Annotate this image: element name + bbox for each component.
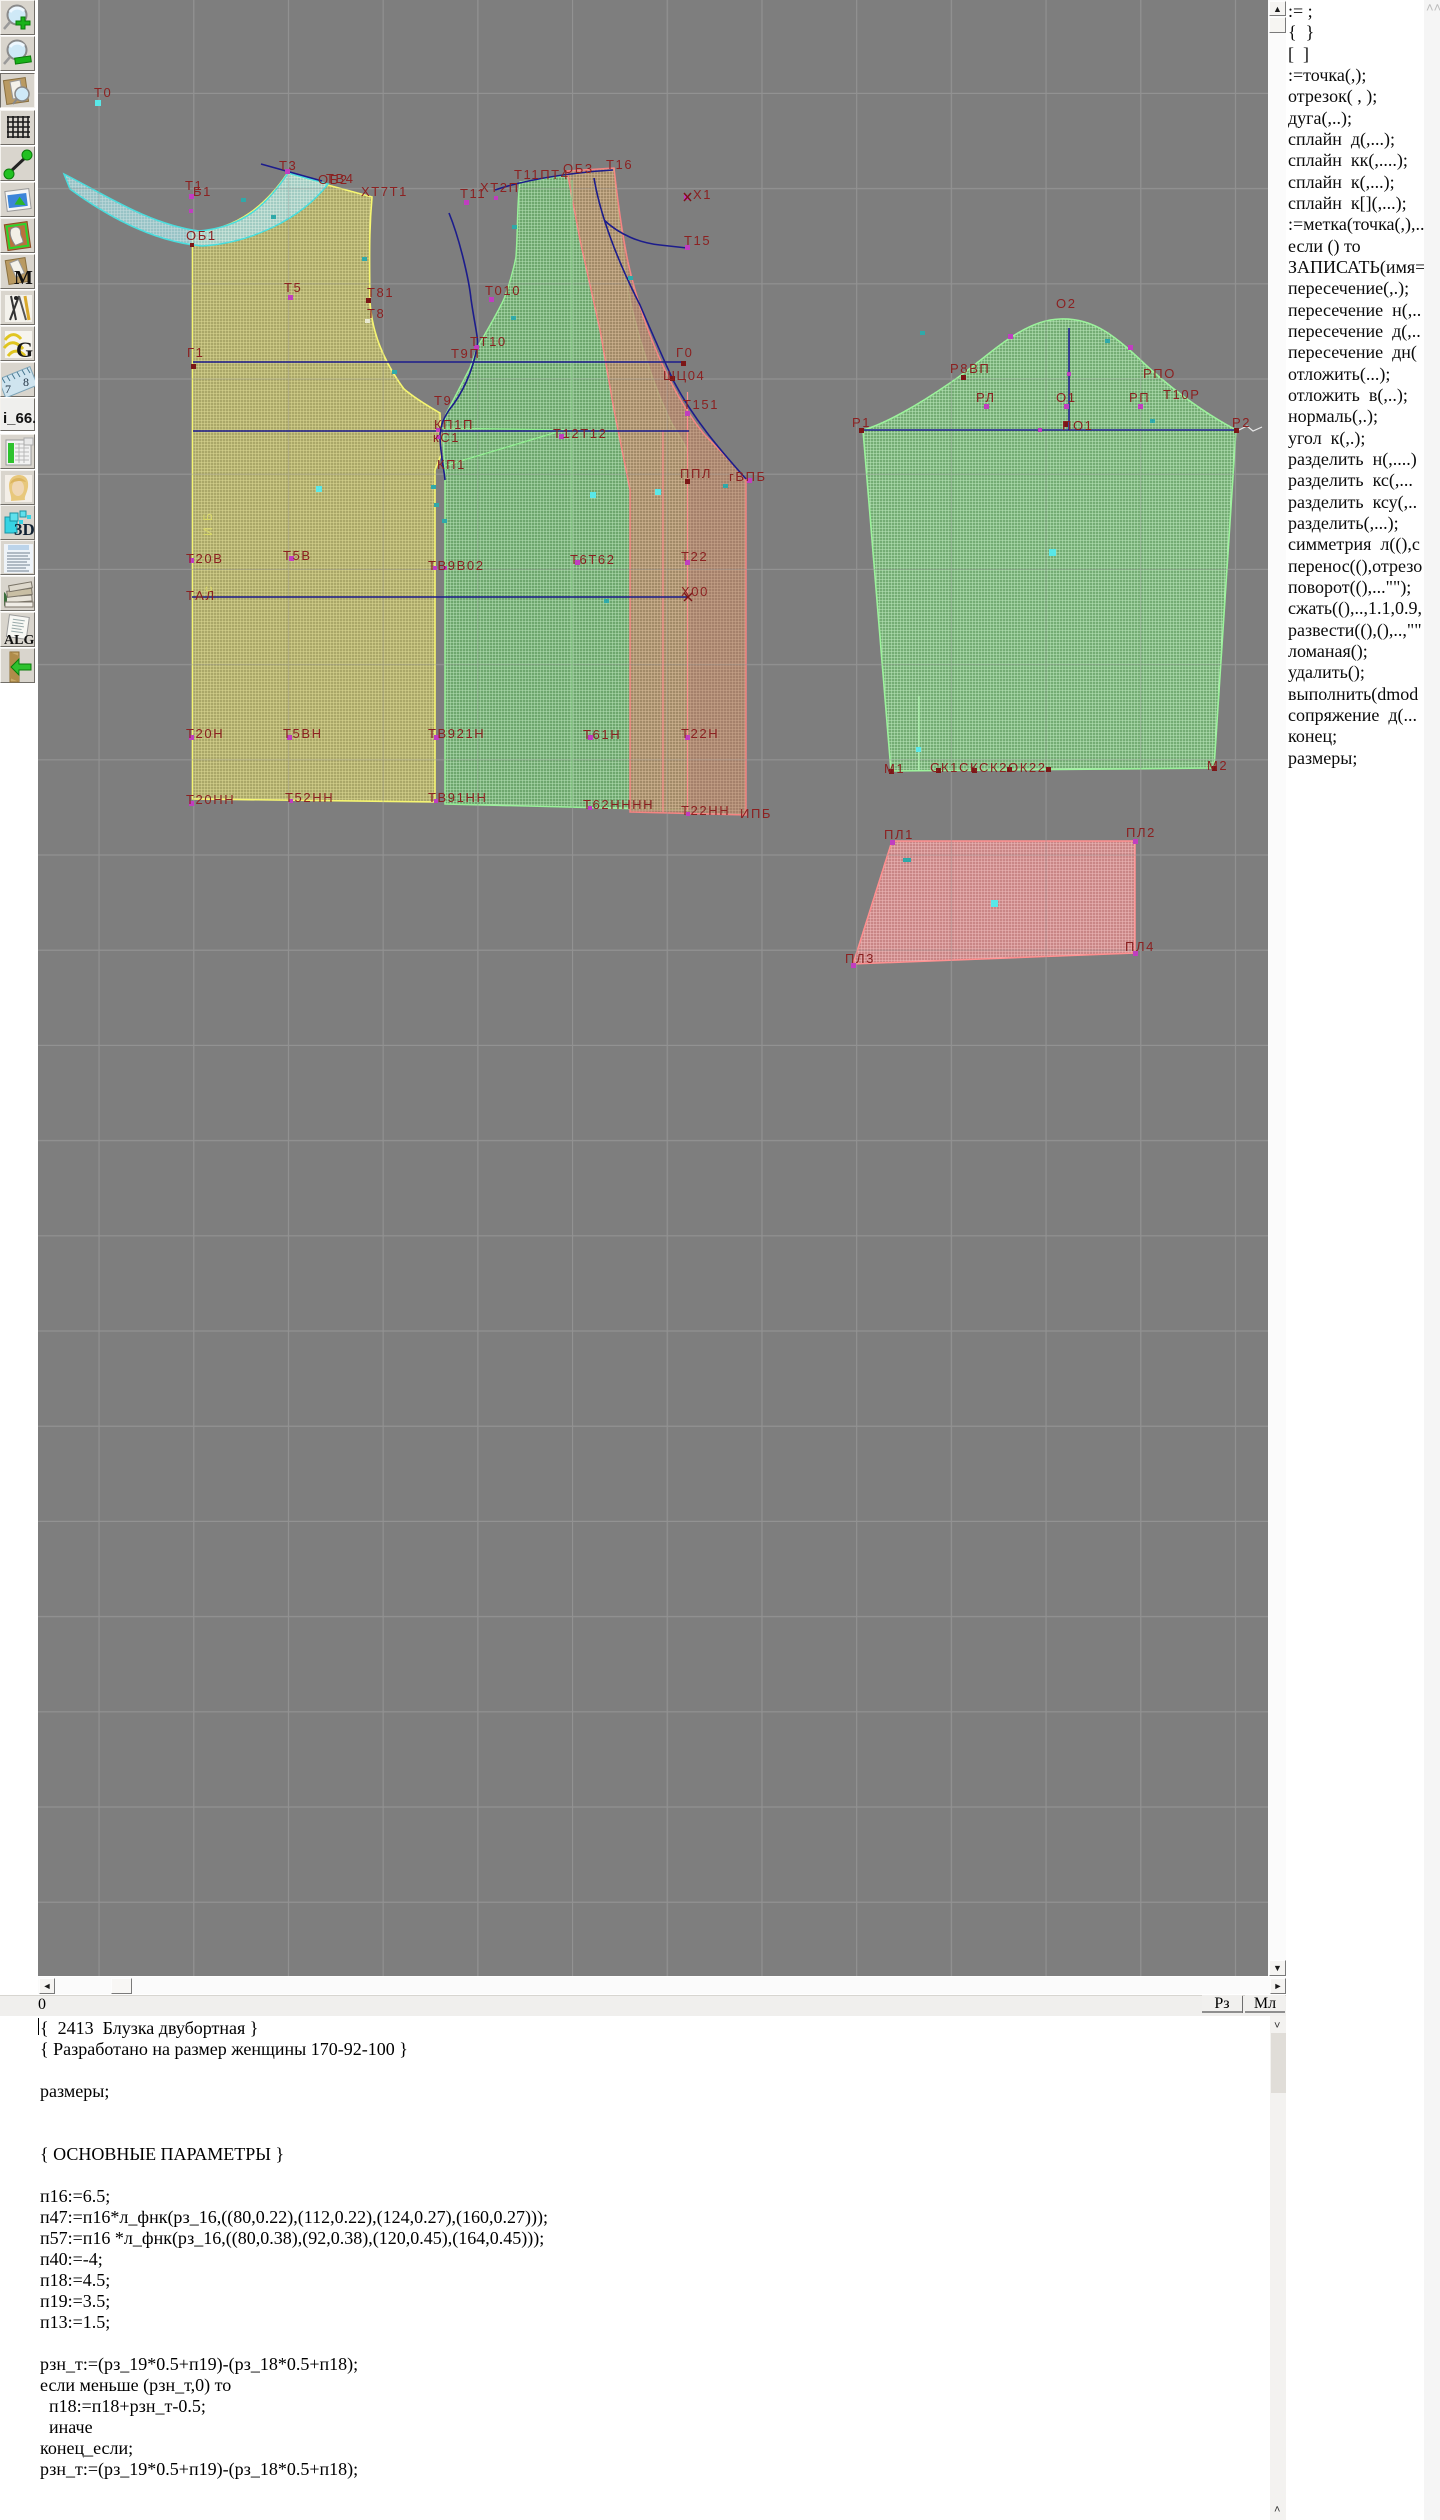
svg-text:Т22: Т22 (681, 549, 708, 564)
svg-text:И Б: И Б (201, 512, 215, 536)
svg-text:РПО: РПО (1143, 366, 1176, 381)
svg-text:Р2: Р2 (1232, 415, 1251, 430)
svg-text:ТВ4: ТВ4 (326, 171, 355, 186)
svg-text:ПЛ1: ПЛ1 (884, 827, 914, 842)
svg-text:ТВ91НН: ТВ91НН (428, 790, 487, 805)
svg-text:Р8ВП: Р8ВП (950, 361, 990, 376)
svg-text:Т15: Т15 (684, 233, 711, 248)
svg-text:Т81: Т81 (367, 285, 394, 300)
svg-text:Т151: Т151 (683, 397, 719, 412)
svg-text:ХТ2П: ХТ2П (480, 180, 520, 195)
svg-text:РП: РП (1129, 390, 1150, 405)
svg-text:Т5В: Т5В (283, 548, 312, 563)
svg-text:ТВ921Н: ТВ921Н (428, 726, 485, 741)
svg-text:Т6Т62: Т6Т62 (570, 552, 616, 567)
svg-text:ПО1: ПО1 (1062, 418, 1094, 433)
svg-text:8: 8 (23, 375, 29, 389)
svg-text:ППЛ: ППЛ (680, 466, 712, 481)
svg-text:Г0: Г0 (676, 345, 693, 360)
svg-text:кС1: кС1 (433, 430, 460, 445)
svg-text:ПЛ4: ПЛ4 (1125, 939, 1155, 954)
svg-text:Т9: Т9 (434, 393, 452, 408)
svg-text:Т61Н: Т61Н (583, 727, 621, 742)
svg-text:О1: О1 (1056, 390, 1077, 405)
svg-text:ИПБ: ИПБ (740, 806, 772, 821)
svg-text:Т11ПТ4: Т11ПТ4 (514, 167, 570, 182)
svg-text:ТТ10: ТТ10 (470, 334, 507, 349)
svg-text:Т5ВН: Т5ВН (283, 726, 323, 741)
svg-text:i_66.: i_66. (3, 410, 35, 427)
svg-text:Т20Н: Т20Н (186, 726, 224, 741)
svg-text:Т8: Т8 (367, 306, 385, 321)
svg-text:Т10Р: Т10Р (1163, 387, 1200, 402)
svg-text:Г1: Г1 (187, 345, 204, 360)
svg-text:Р1: Р1 (852, 415, 871, 430)
svg-text:Б1: Б1 (193, 184, 212, 199)
svg-text:ТВ9В02: ТВ9В02 (428, 558, 485, 573)
svg-text:Т0: Т0 (94, 85, 112, 100)
svg-text:Х1: Х1 (693, 187, 712, 202)
svg-text:с: с (201, 585, 215, 593)
svg-text:М1: М1 (884, 761, 905, 776)
svg-text:Т5: Т5 (284, 280, 302, 295)
svg-text:Т010: Т010 (485, 283, 521, 298)
svg-text:Т20НН: Т20НН (186, 792, 235, 807)
svg-text:гВПБ: гВПБ (729, 469, 767, 484)
svg-text:ОБ1: ОБ1 (186, 228, 217, 243)
svg-text:3D: 3D (14, 520, 35, 539)
svg-text:M: M (14, 267, 33, 289)
svg-text:Т12Т12: Т12Т12 (553, 426, 607, 441)
svg-text:О2: О2 (1056, 296, 1077, 311)
svg-text:СК1СКСК2ОК22: СК1СКСК2ОК22 (930, 760, 1047, 775)
svg-text:М2: М2 (1207, 758, 1228, 773)
svg-text:G: G (16, 337, 33, 361)
svg-text:КП1: КП1 (437, 457, 466, 472)
svg-text:ОБ3: ОБ3 (563, 161, 594, 176)
svg-text:ПЛ2: ПЛ2 (1126, 825, 1156, 840)
svg-text:Х00: Х00 (681, 584, 709, 599)
svg-text:Т22Н: Т22Н (681, 726, 719, 741)
svg-text:ХТ7Т1: ХТ7Т1 (361, 184, 408, 199)
svg-text:Т20В: Т20В (186, 551, 223, 566)
svg-text:ALG: ALG (4, 633, 34, 647)
svg-text:ШЦ04: ШЦ04 (663, 368, 705, 383)
svg-text:РЛ: РЛ (976, 390, 996, 405)
svg-text:7: 7 (5, 382, 11, 396)
svg-text:Т22НН: Т22НН (681, 803, 730, 818)
svg-text:Т16: Т16 (606, 157, 633, 172)
svg-text:Т52НН: Т52НН (285, 790, 334, 805)
svg-text:ПЛ3: ПЛ3 (845, 951, 875, 966)
svg-text:Т62НННН: Т62НННН (583, 797, 654, 812)
svg-text:Т3: Т3 (279, 158, 297, 173)
